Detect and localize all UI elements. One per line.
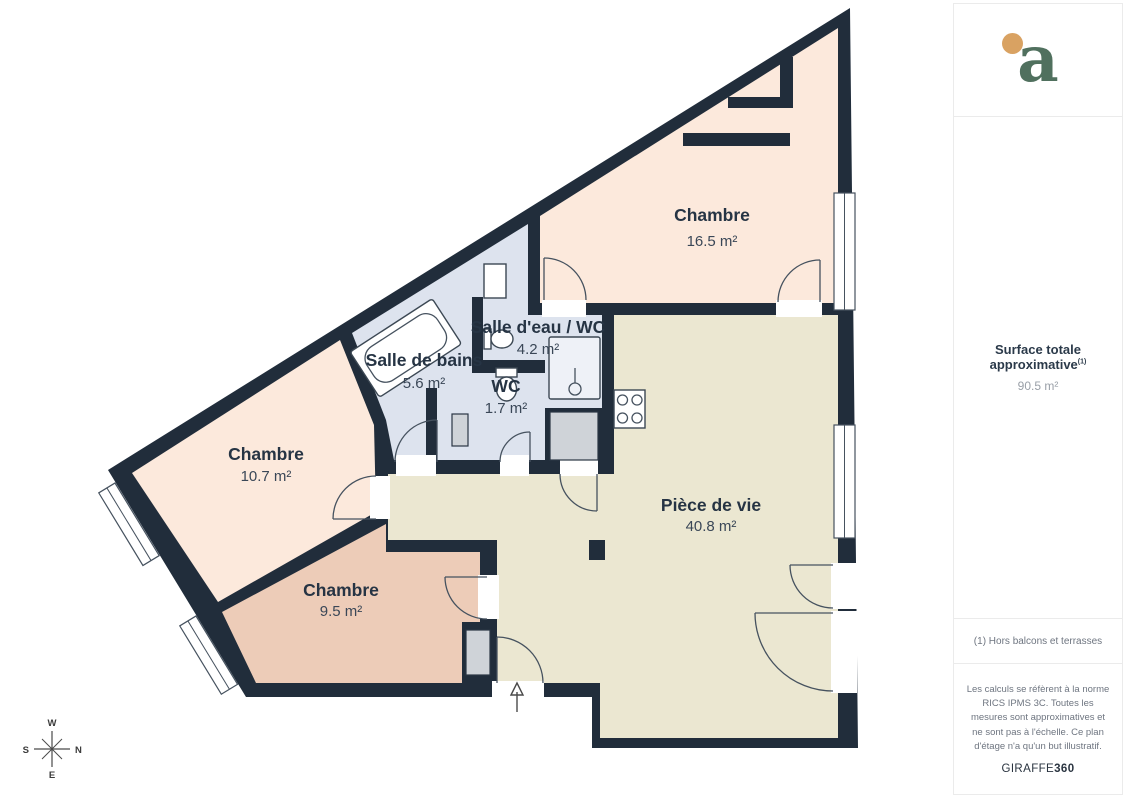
label-salle-de-bains-name: Salle de bains [366, 350, 483, 370]
disclaimer-section: Les calculs se réfèrent à la norme RICS … [954, 664, 1122, 794]
label-salle-deau-area: 4.2 m² [517, 341, 560, 358]
label-wc-area: 1.7 m² [485, 400, 528, 417]
floor-plan: Chambre 16.5 m² Salle d'eau / WC 4.2 m² … [0, 0, 953, 800]
compass-n: N [75, 745, 82, 756]
label-chambre10-name: Chambre [228, 444, 304, 464]
window-chambre16 [834, 193, 855, 310]
sink-cabinet-salle-deau [484, 264, 506, 298]
brand-name: GIRAFFE [1001, 763, 1054, 775]
compass-icon: W N S E [23, 718, 82, 781]
brand-suffix: 360 [1054, 763, 1074, 775]
label-salle-de-bains-area: 5.6 m² [403, 375, 446, 392]
footnote-section: (1) Hors balcons et terrasses [954, 619, 1122, 664]
label-piece-de-vie-area: 40.8 m² [686, 518, 737, 535]
label-chambre9-area: 9.5 m² [320, 603, 363, 620]
label-chambre9-name: Chambre [303, 580, 379, 600]
surface-title: Surface totale approximative(1) [962, 342, 1114, 372]
sink-cabinet-salle-de-bains [452, 414, 468, 446]
giraffe360-logo: a [1017, 28, 1058, 92]
surface-title-footnote-marker: (1) [1078, 359, 1087, 366]
surface-section: Surface totale approximative(1) 90.5 m² [954, 117, 1122, 619]
surface-title-text: Surface totale approximative [990, 342, 1081, 372]
page: Chambre 16.5 m² Salle d'eau / WC 4.2 m² … [0, 0, 1131, 800]
label-chambre16-area: 16.5 m² [687, 233, 738, 250]
logo-box: a [954, 4, 1122, 117]
compass-s: S [23, 745, 29, 756]
surface-value: 90.5 m² [1018, 379, 1059, 393]
info-sidebar: a Surface totale approximative(1) 90.5 m… [953, 3, 1123, 795]
stove-icon [614, 390, 645, 428]
logo-letter: a [1017, 22, 1058, 97]
kitchen-appliance [550, 412, 598, 460]
pillar [589, 540, 605, 560]
entry-closet [466, 630, 490, 675]
label-chambre16-name: Chambre [674, 205, 750, 225]
disclaimer-text: Les calculs se réfèrent à la norme RICS … [966, 683, 1110, 754]
label-piece-de-vie-name: Pièce de vie [661, 495, 761, 515]
window-living [834, 425, 855, 538]
label-chambre10-area: 10.7 m² [241, 468, 292, 485]
label-wc-name: WC [491, 376, 521, 396]
compass-w: W [48, 718, 57, 729]
footnote-text: (1) Hors balcons et terrasses [974, 636, 1102, 647]
room-chambre-16 [540, 28, 838, 303]
label-salle-deau-name: Salle d'eau / WC [471, 317, 606, 337]
giraffe360-wordmark: GIRAFFE360 [1001, 763, 1074, 775]
compass-e: E [49, 770, 55, 781]
